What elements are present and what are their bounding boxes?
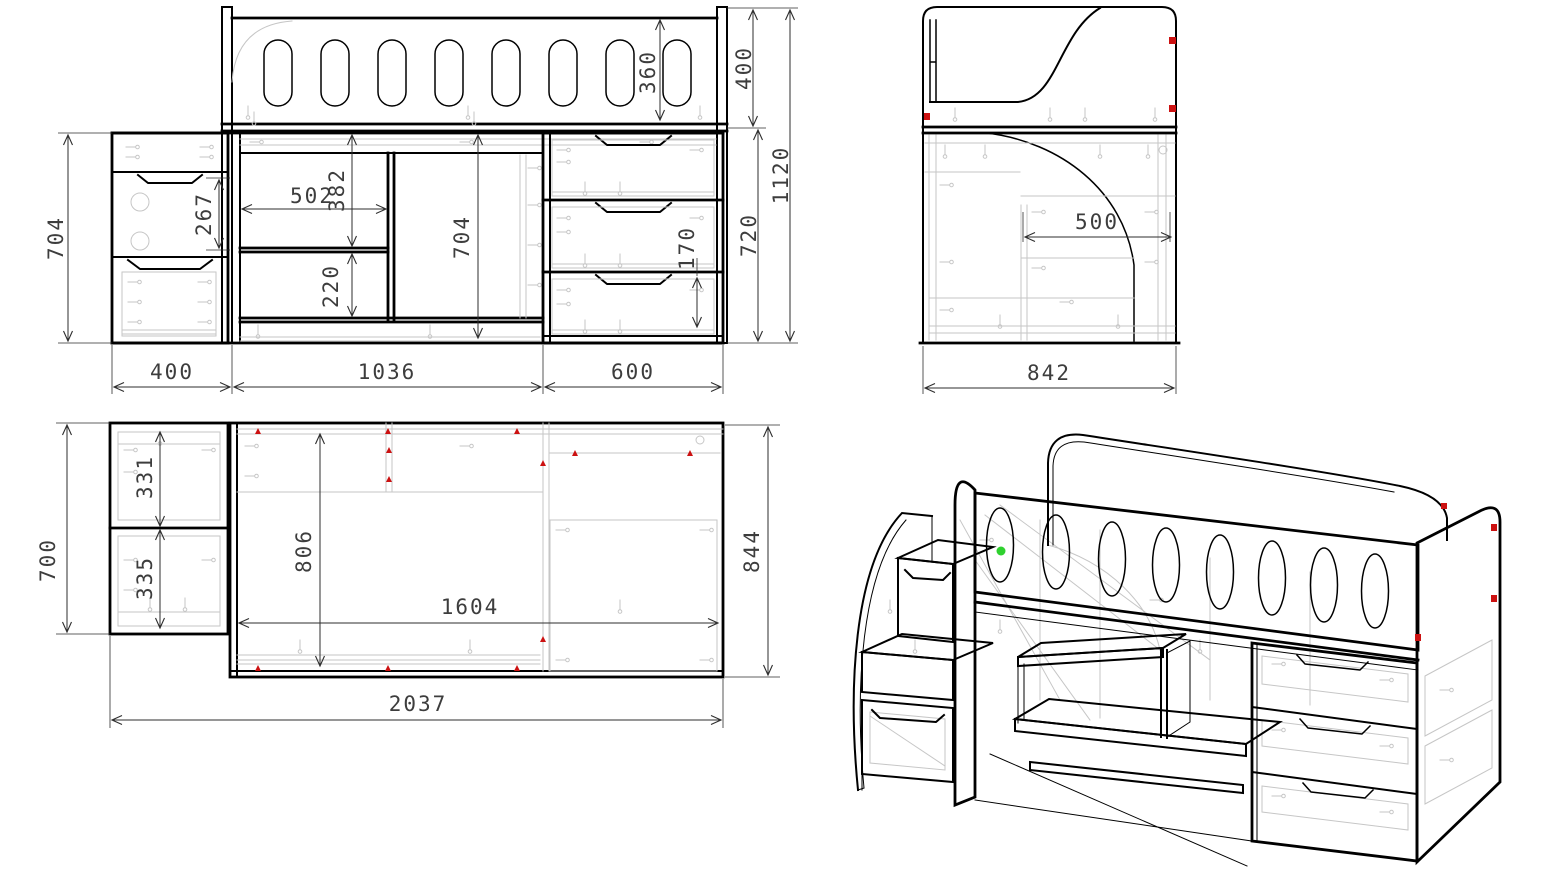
- dim-267: 267: [192, 192, 216, 236]
- dim-720: 720: [737, 213, 761, 257]
- dim-360: 360: [636, 50, 660, 94]
- dim-806: 806: [292, 529, 316, 573]
- dim-844: 844: [740, 529, 764, 573]
- marker-green-dot: [997, 547, 1006, 556]
- dim-width-600: 600: [611, 360, 655, 384]
- dim-170: 170: [675, 226, 699, 270]
- dim-2037: 2037: [389, 692, 448, 716]
- dim-1604: 1604: [441, 595, 500, 619]
- dim-width-1036: 1036: [358, 360, 417, 384]
- dim-704-left: 704: [44, 216, 68, 260]
- dim-335: 335: [133, 556, 157, 600]
- dim-400-upper: 400: [732, 46, 756, 90]
- dim-331: 331: [133, 455, 157, 499]
- dim-220: 220: [319, 264, 343, 308]
- dim-700: 700: [36, 538, 60, 582]
- dim-width-400: 400: [150, 360, 194, 384]
- dim-704-center: 704: [450, 215, 474, 259]
- dim-382: 382: [325, 168, 349, 212]
- dim-842: 842: [1027, 361, 1071, 385]
- blueprint-canvas: 360 400 1120 720 170 704 267 502 382 220: [0, 0, 1549, 872]
- dim-500: 500: [1075, 210, 1119, 234]
- loft-bed-technical-drawing: 360 400 1120 720 170 704 267 502 382 220: [0, 0, 1549, 872]
- dim-1120: 1120: [769, 146, 793, 205]
